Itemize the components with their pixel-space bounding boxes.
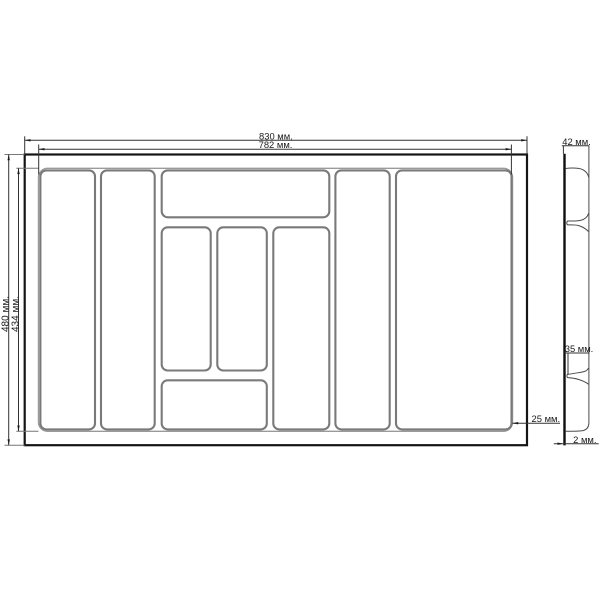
svg-text:782 мм.: 782 мм. (259, 139, 293, 150)
svg-text:35 мм.: 35 мм. (565, 343, 594, 354)
svg-text:2 мм.: 2 мм. (573, 434, 596, 445)
svg-text:434 мм.: 434 мм. (10, 296, 21, 332)
svg-text:25 мм.: 25 мм. (532, 413, 561, 424)
svg-text:42 мм.: 42 мм. (562, 136, 591, 147)
